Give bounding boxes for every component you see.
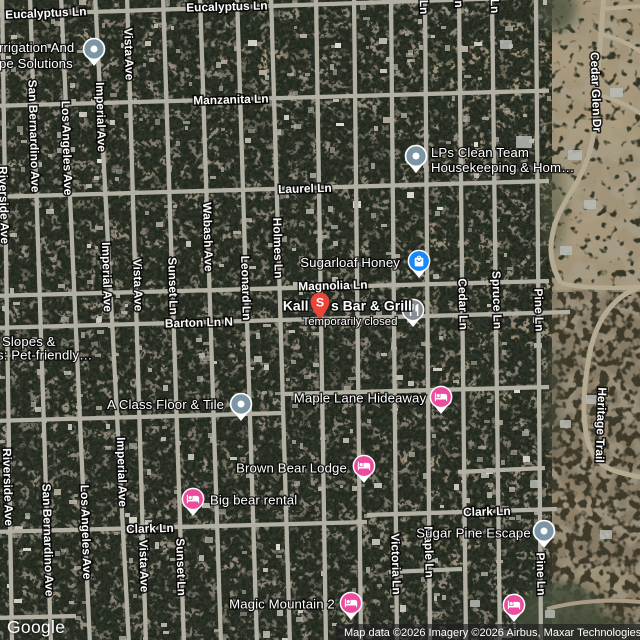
svg-text:S: S — [316, 295, 324, 309]
svg-text:Heritage Trail: Heritage Trail — [593, 387, 610, 463]
svg-text:Vista Ave: Vista Ave — [130, 259, 145, 312]
svg-text:Leonard Ln: Leonard Ln — [238, 255, 254, 320]
svg-text:Imperial Ave: Imperial Ave — [99, 242, 115, 313]
svg-text:Barton Ln N: Barton Ln N — [165, 315, 233, 331]
svg-text:Sunset Ln: Sunset Ln — [173, 538, 189, 596]
svg-text:pe Solutions: pe Solutions — [0, 56, 73, 71]
svg-text:Cedar Ln: Cedar Ln — [455, 278, 470, 330]
svg-text:Victoria Ln: Victoria Ln — [388, 533, 404, 595]
svg-text:Vista Ave: Vista Ave — [136, 540, 151, 593]
svg-text:Ln: Ln — [488, 0, 502, 13]
svg-text:Laurel Ln: Laurel Ln — [278, 181, 332, 196]
svg-text:Sugarloaf Honey: Sugarloaf Honey — [300, 255, 400, 270]
svg-text:Magnolia Ln: Magnolia Ln — [298, 278, 368, 294]
svg-text:rrigation And: rrigation And — [0, 40, 74, 55]
svg-text:A Class Floor & Tile: A Class Floor & Tile — [107, 397, 224, 412]
svg-text:Holmes Ln: Holmes Ln — [270, 217, 286, 278]
svg-text:n: n — [452, 0, 466, 8]
svg-text:Clark Ln: Clark Ln — [463, 504, 511, 519]
svg-text:Sunset Ln: Sunset Ln — [165, 257, 181, 315]
svg-text:Los Angeles Ave: Los Angeles Ave — [59, 101, 76, 196]
svg-text:Riverside Ave: Riverside Ave — [0, 166, 12, 245]
svg-text:Maple Lane Hideaway: Maple Lane Hideaway — [294, 391, 427, 406]
svg-text:Housekeeping & Hom…: Housekeeping & Hom… — [431, 160, 574, 175]
svg-text:Spruce Ln: Spruce Ln — [489, 271, 505, 330]
svg-text:s: Pet-friendly…: s: Pet-friendly… — [0, 348, 92, 363]
svg-text:Vista Ave: Vista Ave — [121, 28, 136, 81]
svg-text:LPs Clean Team: LPs Clean Team — [431, 145, 529, 160]
svg-text:Cedar Glen Dr: Cedar Glen Dr — [588, 52, 605, 133]
svg-text:Imperial Ave: Imperial Ave — [93, 82, 109, 153]
svg-text:Magic Mountain 2: Magic Mountain 2 — [229, 597, 335, 612]
svg-text:Temporarily closed: Temporarily closed — [303, 316, 398, 328]
svg-text:Eucalyptus Ln: Eucalyptus Ln — [186, 0, 268, 15]
svg-text:Imperial Ave: Imperial Ave — [114, 437, 130, 508]
svg-text:Los Angeles Ave: Los Angeles Ave — [78, 485, 95, 580]
svg-text:Brown Bear Lodge: Brown Bear Lodge — [236, 461, 347, 476]
svg-text:Map data ©2026 Imagery ©2026 A: Map data ©2026 Imagery ©2026 Airbus, Max… — [344, 627, 640, 639]
svg-text:Pine Ln: Pine Ln — [533, 552, 548, 595]
svg-text:s Bar & Grill: s Bar & Grill — [331, 298, 412, 314]
svg-text:Manzanita Ln: Manzanita Ln — [193, 91, 269, 107]
svg-text:Clark Ln: Clark Ln — [126, 521, 174, 536]
svg-text:Ln: Ln — [417, 0, 431, 14]
svg-text:Pine Ln: Pine Ln — [531, 288, 546, 331]
svg-text:Big bear rental: Big bear rental — [210, 493, 297, 508]
svg-text:Riverside Ave: Riverside Ave — [0, 448, 16, 527]
svg-text:Wabash Ave: Wabash Ave — [200, 202, 216, 272]
svg-text:Sugar Pine Escape: Sugar Pine Escape — [416, 526, 531, 541]
svg-text:Google: Google — [7, 617, 65, 637]
svg-text:Kall: Kall — [283, 298, 309, 314]
